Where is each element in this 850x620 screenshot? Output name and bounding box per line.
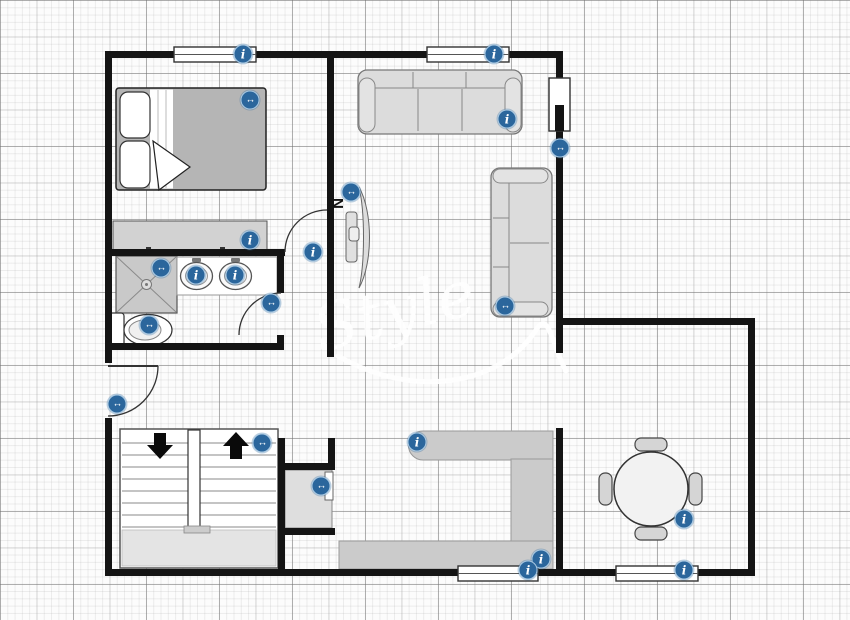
pillow — [120, 92, 150, 138]
wall-bedroom-bath — [105, 249, 285, 256]
wall-left-upper — [105, 51, 112, 363]
sink-left-tag-icon[interactable]: i — [187, 266, 206, 285]
wall-kitchen-dining — [556, 428, 563, 576]
tv-tag-icon[interactable]: ↔ — [342, 183, 361, 202]
stair-divider — [188, 430, 200, 530]
pillow — [120, 141, 150, 188]
sofa-armrest — [493, 169, 548, 183]
loveseat-tag-icon[interactable]: ↔ — [496, 297, 515, 316]
wall-left-lower — [105, 418, 112, 576]
bed-tag-icon[interactable]: ↔ — [241, 91, 260, 110]
bedroom-window-tag-icon[interactable]: i — [234, 45, 253, 64]
staircase[interactable] — [120, 429, 278, 568]
faucet — [192, 258, 201, 262]
chair — [635, 527, 667, 540]
wall-living-left — [327, 256, 334, 357]
dining-window-tag-icon[interactable]: i — [675, 561, 694, 580]
north-label: N — [329, 198, 346, 209]
wall-dining-top — [556, 318, 755, 325]
sofa-tag-icon[interactable]: i — [498, 110, 517, 129]
sliding-window-tag-icon[interactable]: ↔ — [551, 139, 570, 158]
entry-door-tag-icon[interactable]: ↔ — [108, 395, 127, 414]
closet-tag-icon[interactable]: ↔ — [312, 477, 331, 496]
wall-closet-bottom — [285, 528, 335, 535]
loveseat[interactable] — [491, 168, 552, 317]
three-seat-sofa[interactable] — [358, 70, 522, 134]
stairs-tag-icon[interactable]: ↔ — [253, 434, 272, 453]
toilet-tag-icon[interactable]: ↔ — [140, 316, 159, 335]
sofa-armrest — [359, 78, 375, 132]
bathroom-door-tag-icon[interactable]: ↔ — [262, 294, 281, 313]
faucet — [231, 258, 240, 262]
chair — [635, 438, 667, 451]
chair — [599, 473, 612, 505]
kitchen-counter[interactable] — [339, 431, 553, 569]
wall-bath-right-upper — [277, 249, 284, 293]
wall-tv[interactable] — [346, 187, 370, 288]
sliding-window[interactable] — [549, 78, 570, 131]
tv-screen — [359, 187, 370, 288]
wall-bedroom-divider — [327, 51, 334, 256]
wall-right — [748, 318, 755, 576]
shower-tag-icon[interactable]: ↔ — [152, 259, 171, 278]
wall-bath-bottom — [105, 343, 284, 350]
wall-stairs-right — [278, 438, 285, 576]
living-window-tag-icon[interactable]: i — [485, 45, 504, 64]
dining-table-tag-icon[interactable]: i — [675, 510, 694, 529]
floor-plan-canvas: Style — [0, 0, 850, 620]
stair-landing — [122, 530, 276, 566]
kitchen-window-tag-icon[interactable]: i — [519, 561, 538, 580]
wall-closet-top — [285, 463, 335, 470]
dresser-tag-icon[interactable]: i — [241, 231, 260, 250]
chair — [689, 473, 702, 505]
toilet[interactable] — [106, 313, 172, 347]
floor-plan-drawing: Style — [0, 0, 850, 620]
sink-right-tag-icon[interactable]: i — [226, 266, 245, 285]
counter-end-tag-icon[interactable]: i — [408, 433, 427, 452]
bedroom-door-tag-icon[interactable]: i — [304, 243, 323, 262]
